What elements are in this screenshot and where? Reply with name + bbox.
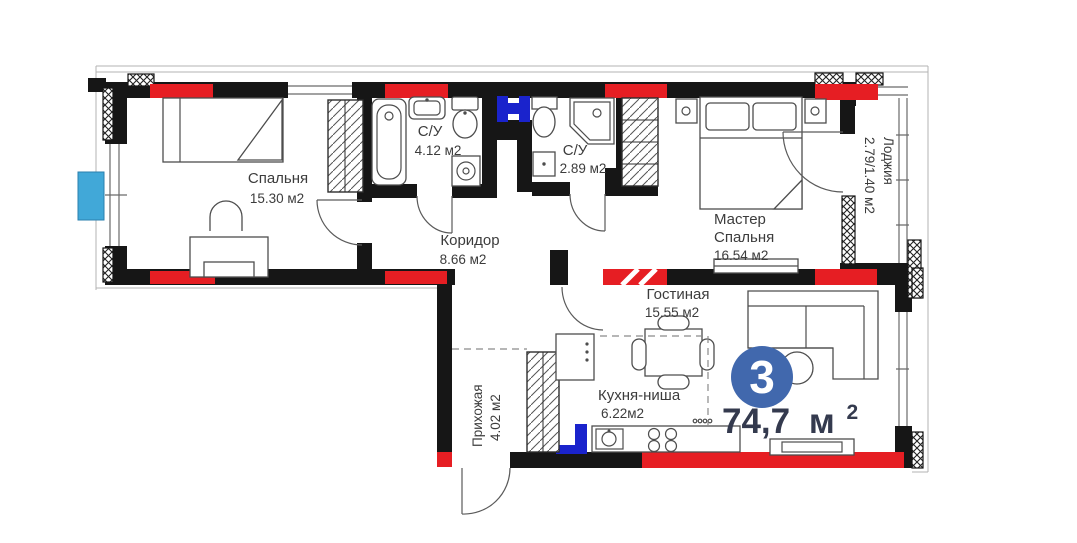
- radiator: [605, 84, 667, 98]
- wall-bath1-east: [482, 98, 497, 198]
- label-living-room: Гостиная 15.55 м2: [645, 286, 710, 320]
- label-bedroom: Спальня 15.30 м2: [248, 170, 308, 206]
- total-area-label: 74,7 м 2: [722, 401, 858, 441]
- chair-icon: [210, 201, 242, 231]
- door-arc-bedroom: [317, 200, 362, 245]
- vent-block-icon: [842, 196, 855, 264]
- room-name: Коридор: [440, 232, 499, 249]
- vent-block-icon: [103, 88, 113, 140]
- tv-stand-icon: [770, 439, 854, 455]
- nightstand-icon: [676, 99, 697, 123]
- apartment-number: 3: [749, 351, 775, 403]
- door-arc-bathroom2: [570, 194, 605, 231]
- door-arc-bathroom1: [417, 196, 452, 233]
- wall-top: [105, 82, 857, 98]
- wall-bath-divider: [517, 140, 532, 192]
- wall-bedroom-east-stub: [357, 243, 372, 271]
- shower-icon: [570, 98, 614, 144]
- room-name: Спальня: [248, 170, 308, 187]
- room-name: Кухня-ниша: [598, 387, 681, 404]
- plumbing-shaft: [505, 103, 522, 114]
- room-area: 2.89 м2: [560, 161, 607, 176]
- radiator: [385, 84, 448, 98]
- window-loggia-right: [896, 98, 909, 263]
- bathroom-cabinet-icon: [533, 152, 555, 176]
- label-master-bedroom: Мастер Спальня 16.54 м2: [714, 211, 774, 263]
- room-area: 15.30 м2: [250, 191, 304, 206]
- vent-block-icon: [815, 73, 843, 85]
- wall-bath2-south: [532, 182, 570, 196]
- room-name: Гостиная: [647, 286, 710, 303]
- wall-stub-master: [605, 168, 622, 196]
- window-bedroom-top: [288, 82, 352, 98]
- wall-hall-west: [437, 269, 452, 454]
- vent-block-icon: [912, 432, 923, 468]
- radiator: [150, 84, 213, 98]
- wall-wardrobe-base: [622, 186, 658, 196]
- wardrobe-icon: [622, 98, 658, 186]
- wardrobe-icon: [328, 100, 363, 192]
- label-loggia: Лоджия 2.79/1.40 м2: [862, 137, 896, 214]
- sink-icon: [409, 97, 445, 119]
- vent-block-icon: [912, 268, 923, 298]
- room-area: 4.12 м2: [415, 143, 462, 158]
- room-area: 4.02 м2: [488, 394, 503, 441]
- radiator: [815, 84, 878, 100]
- radiator: [815, 269, 877, 285]
- radiator: [437, 452, 452, 467]
- floor-plan: Спальня 15.30 м2 С/У 4.12 м2 С/У 2.89 м2…: [0, 0, 1077, 543]
- wall-shaft-block: [497, 120, 532, 140]
- vent-block-icon: [103, 248, 113, 282]
- room-name: Мастер: [714, 211, 766, 228]
- total-area-unit: м: [809, 402, 835, 441]
- room-area: 2.79/1.40 м2: [862, 137, 877, 214]
- wall-corridor-living: [550, 250, 568, 285]
- label-corridor: Коридор 8.66 м2: [440, 232, 500, 267]
- room-area: 6.22м2: [601, 406, 644, 421]
- room-area: 16.54 м2: [714, 248, 768, 263]
- nightstand-icon: [805, 99, 826, 123]
- room-name: Прихожая: [470, 384, 485, 447]
- label-hallway: Прихожая 4.02 м2: [470, 384, 503, 447]
- apartment-number-badge: 3: [731, 346, 793, 408]
- fridge-icon: [556, 334, 594, 380]
- room-area: 8.66 м2: [440, 252, 487, 267]
- kitchen-counter-icon: [592, 419, 740, 452]
- vent-block-icon: [856, 73, 883, 85]
- dining-table-icon: [632, 316, 714, 389]
- label-kitchen-niche: Кухня-ниша 6.22м2: [598, 387, 681, 421]
- room-name: Лоджия: [881, 137, 896, 185]
- ac-unit-icon: [78, 172, 104, 220]
- room-name: С/У: [563, 142, 588, 159]
- bed-icon: [163, 98, 283, 162]
- door-arc-living: [562, 287, 603, 330]
- room-area: 15.55 м2: [645, 305, 699, 320]
- wardrobe-icon: [527, 352, 559, 452]
- desk-icon: [190, 237, 268, 277]
- toilet-icon: [452, 97, 478, 138]
- wall-bath1-south: [372, 184, 417, 198]
- total-area-exponent: 2: [847, 401, 859, 424]
- wall-bottom-entrance: [510, 452, 642, 468]
- room-name: С/У: [418, 123, 443, 140]
- room-name: Спальня: [714, 229, 774, 246]
- bathtub-icon: [372, 99, 406, 185]
- window-living-right: [896, 312, 909, 426]
- label-bathroom2: С/У 2.89 м2: [560, 142, 607, 176]
- radiator: [385, 271, 447, 284]
- sink-icon: [532, 97, 557, 137]
- total-area-value: 74,7: [722, 402, 790, 441]
- washing-machine-icon: [452, 156, 480, 186]
- entrance-door: [462, 468, 510, 514]
- vent-grille-icon: [693, 419, 712, 423]
- floor-plan-page: Спальня 15.30 м2 С/У 4.12 м2 С/У 2.89 м2…: [0, 0, 1077, 543]
